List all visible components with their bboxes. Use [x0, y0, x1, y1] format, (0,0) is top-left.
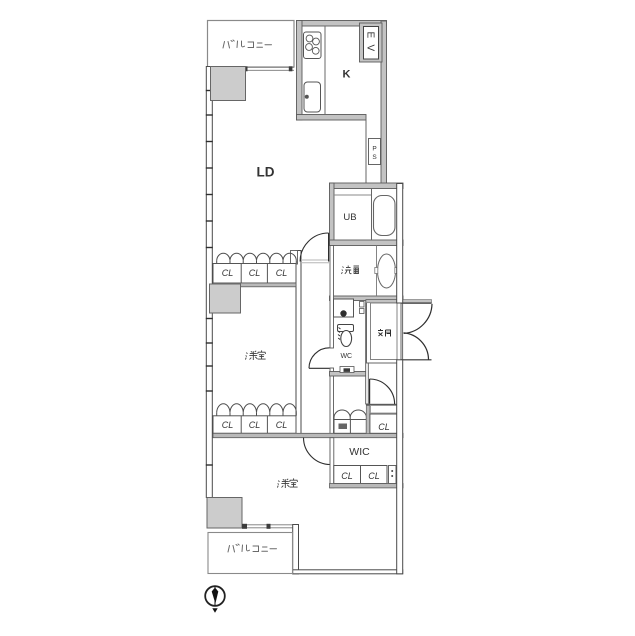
svg-text:CL: CL — [222, 420, 234, 430]
svg-text:K: K — [343, 68, 351, 80]
svg-text:P: P — [372, 146, 376, 153]
svg-text:CL: CL — [276, 420, 288, 430]
svg-text:CL: CL — [368, 471, 380, 481]
svg-text:CL: CL — [249, 420, 261, 430]
svg-text:CL: CL — [276, 268, 288, 278]
svg-text:CL: CL — [378, 422, 390, 432]
svg-text:UB: UB — [343, 212, 356, 223]
svg-text:WC: WC — [340, 353, 352, 360]
svg-text:S: S — [372, 154, 377, 161]
svg-text:LD: LD — [257, 165, 275, 180]
svg-text:CL: CL — [222, 268, 234, 278]
svg-text:CL: CL — [341, 471, 353, 481]
svg-text:CL: CL — [249, 268, 261, 278]
svg-text:E: E — [365, 32, 376, 39]
svg-text:V: V — [365, 45, 376, 52]
svg-text:WIC: WIC — [349, 446, 370, 458]
